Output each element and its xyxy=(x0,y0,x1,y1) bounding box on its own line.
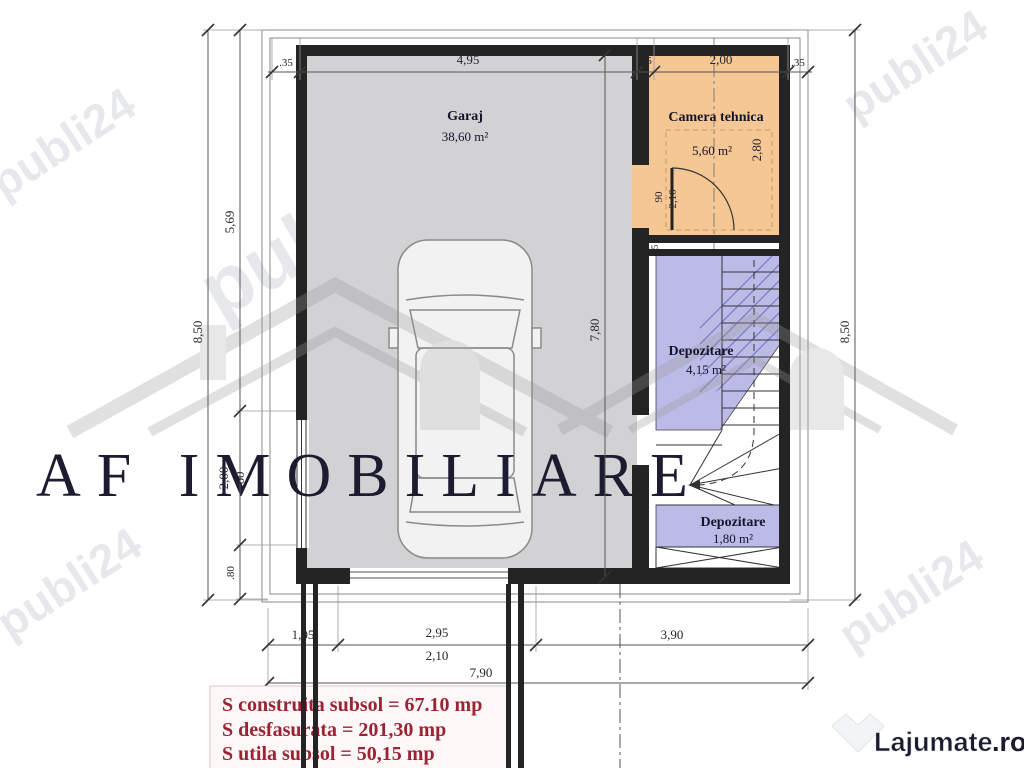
floor-plan-canvas: publi24 publi24 publi24 publi24 publi24 xyxy=(0,0,1024,768)
dim-door-height: 2,10 xyxy=(667,189,679,209)
storage1-label: Depozitare xyxy=(668,344,733,359)
watermark-bottom-right: publi24 xyxy=(829,529,993,661)
wall-technical-bottom xyxy=(649,235,779,243)
car-mirror-left xyxy=(389,328,398,348)
wall-storage-top xyxy=(649,249,779,256)
footer-site-tld: .ro xyxy=(992,727,1024,757)
dim-left-seg-2: 60 xyxy=(232,472,247,485)
dim-left-total: 8,50 xyxy=(190,321,205,344)
dim-bottom-1: 2,95 xyxy=(426,625,449,640)
watermark-top-right: publi24 xyxy=(833,0,997,130)
dim-left-seg-1: 2,00 xyxy=(216,467,231,490)
footer-site-name: Lajumate xyxy=(874,727,993,757)
wall-left-upper xyxy=(296,45,307,420)
dim-bottom-sub: 2,10 xyxy=(426,648,449,663)
dim-technical-depth: 2,80 xyxy=(749,139,764,162)
wall-bottom-left xyxy=(296,568,350,584)
garage-door xyxy=(350,572,508,578)
watermark-top-left: publi24 xyxy=(0,77,145,209)
dim-garage-depth: 7,80 xyxy=(587,319,602,342)
technical-doorway-floor xyxy=(632,165,649,228)
dim-left-seg-0: 5,69 xyxy=(222,211,237,234)
summary-line-3: S utila subsol = 50,15 mp xyxy=(222,743,435,765)
dim-top-4: .35 xyxy=(791,57,805,69)
technical-label: Camera tehnica xyxy=(668,110,763,125)
floor-plan-page: publi24 publi24 publi24 publi24 publi24 xyxy=(0,0,1024,768)
storage2-area: 1,80 m² xyxy=(713,531,753,546)
dim-bottom-2: 3,90 xyxy=(661,627,684,642)
dim-top-0: .35 xyxy=(279,57,293,69)
wall-bottom-right xyxy=(508,568,790,584)
technical-area: 5,60 m² xyxy=(692,143,732,158)
summary-box: S construita subsol = 67.10 mp S desfasu… xyxy=(210,686,508,768)
summary-line-2: S desfasurata = 201,30 mp xyxy=(222,719,446,741)
car-mirror-right xyxy=(532,328,541,348)
dim-door-width: 90 xyxy=(653,191,665,203)
dim-right-total: 8,50 xyxy=(837,321,852,344)
watermark-window-right xyxy=(790,348,844,430)
dim-top-3: 2,00 xyxy=(710,52,733,67)
wall-right xyxy=(779,45,790,584)
watermark-bottom-left: publi24 xyxy=(0,517,151,649)
agency-watermark-text: AF IMOBILIARE xyxy=(36,442,704,510)
summary-line-1: S construita subsol = 67.10 mp xyxy=(222,694,482,716)
garage-label: Garaj xyxy=(447,109,483,124)
watermark-window-left xyxy=(420,340,480,430)
dim-top-2: .25 xyxy=(638,55,652,67)
unexcavated-cross xyxy=(656,547,783,568)
storage1-area: 4,15 m² xyxy=(686,362,726,377)
garage-area: 38,60 m² xyxy=(442,129,489,144)
dim-top-1: 4,95 xyxy=(457,52,480,67)
dim-left-seg-3: .80 xyxy=(225,566,237,580)
storage2-label: Depozitare xyxy=(700,515,765,530)
dim-wall-small: 5 xyxy=(650,244,660,249)
dim-bottom-total: 7,90 xyxy=(470,665,493,680)
footer-logo: Lajumate .ro xyxy=(832,714,1024,757)
